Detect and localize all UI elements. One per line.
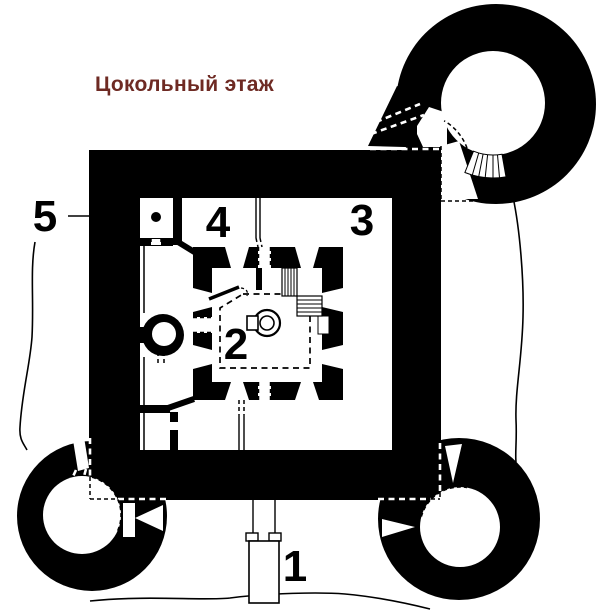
sw-cell-east-wall	[170, 412, 178, 450]
porch-steps	[249, 541, 279, 603]
core-door-west	[193, 317, 212, 333]
nw-cell-door-gap	[151, 239, 161, 245]
core-door-north	[258, 247, 271, 268]
room-label-5: 5	[33, 192, 57, 241]
tower-southwest-embrasure-base	[123, 503, 135, 537]
porch-jamb-right	[269, 533, 281, 541]
page-title: Цокольный этаж	[95, 73, 275, 96]
room-label-4: 4	[206, 198, 231, 247]
room-label-1: 1	[283, 542, 307, 591]
room-label-3: 3	[350, 196, 374, 245]
tower-northeast-interior	[441, 51, 545, 155]
sw-cell-north-wall	[140, 405, 170, 413]
floor-plan-svg: Цокольный этаж 5 4 3 2 1	[0, 0, 601, 614]
floor-plan-page: Цокольный этаж 5 4 3 2 1	[0, 0, 601, 614]
sw-cell-door-gap	[170, 422, 178, 430]
north-wall-stub	[256, 268, 262, 290]
porch-jamb-left	[246, 533, 258, 541]
tower-southwest-interior	[43, 476, 121, 554]
column-dot	[151, 212, 161, 222]
nw-cell-east-wall	[173, 198, 182, 245]
room-label-2: 2	[224, 320, 248, 369]
core-door-south	[258, 382, 271, 400]
core-niche-east	[318, 316, 329, 334]
